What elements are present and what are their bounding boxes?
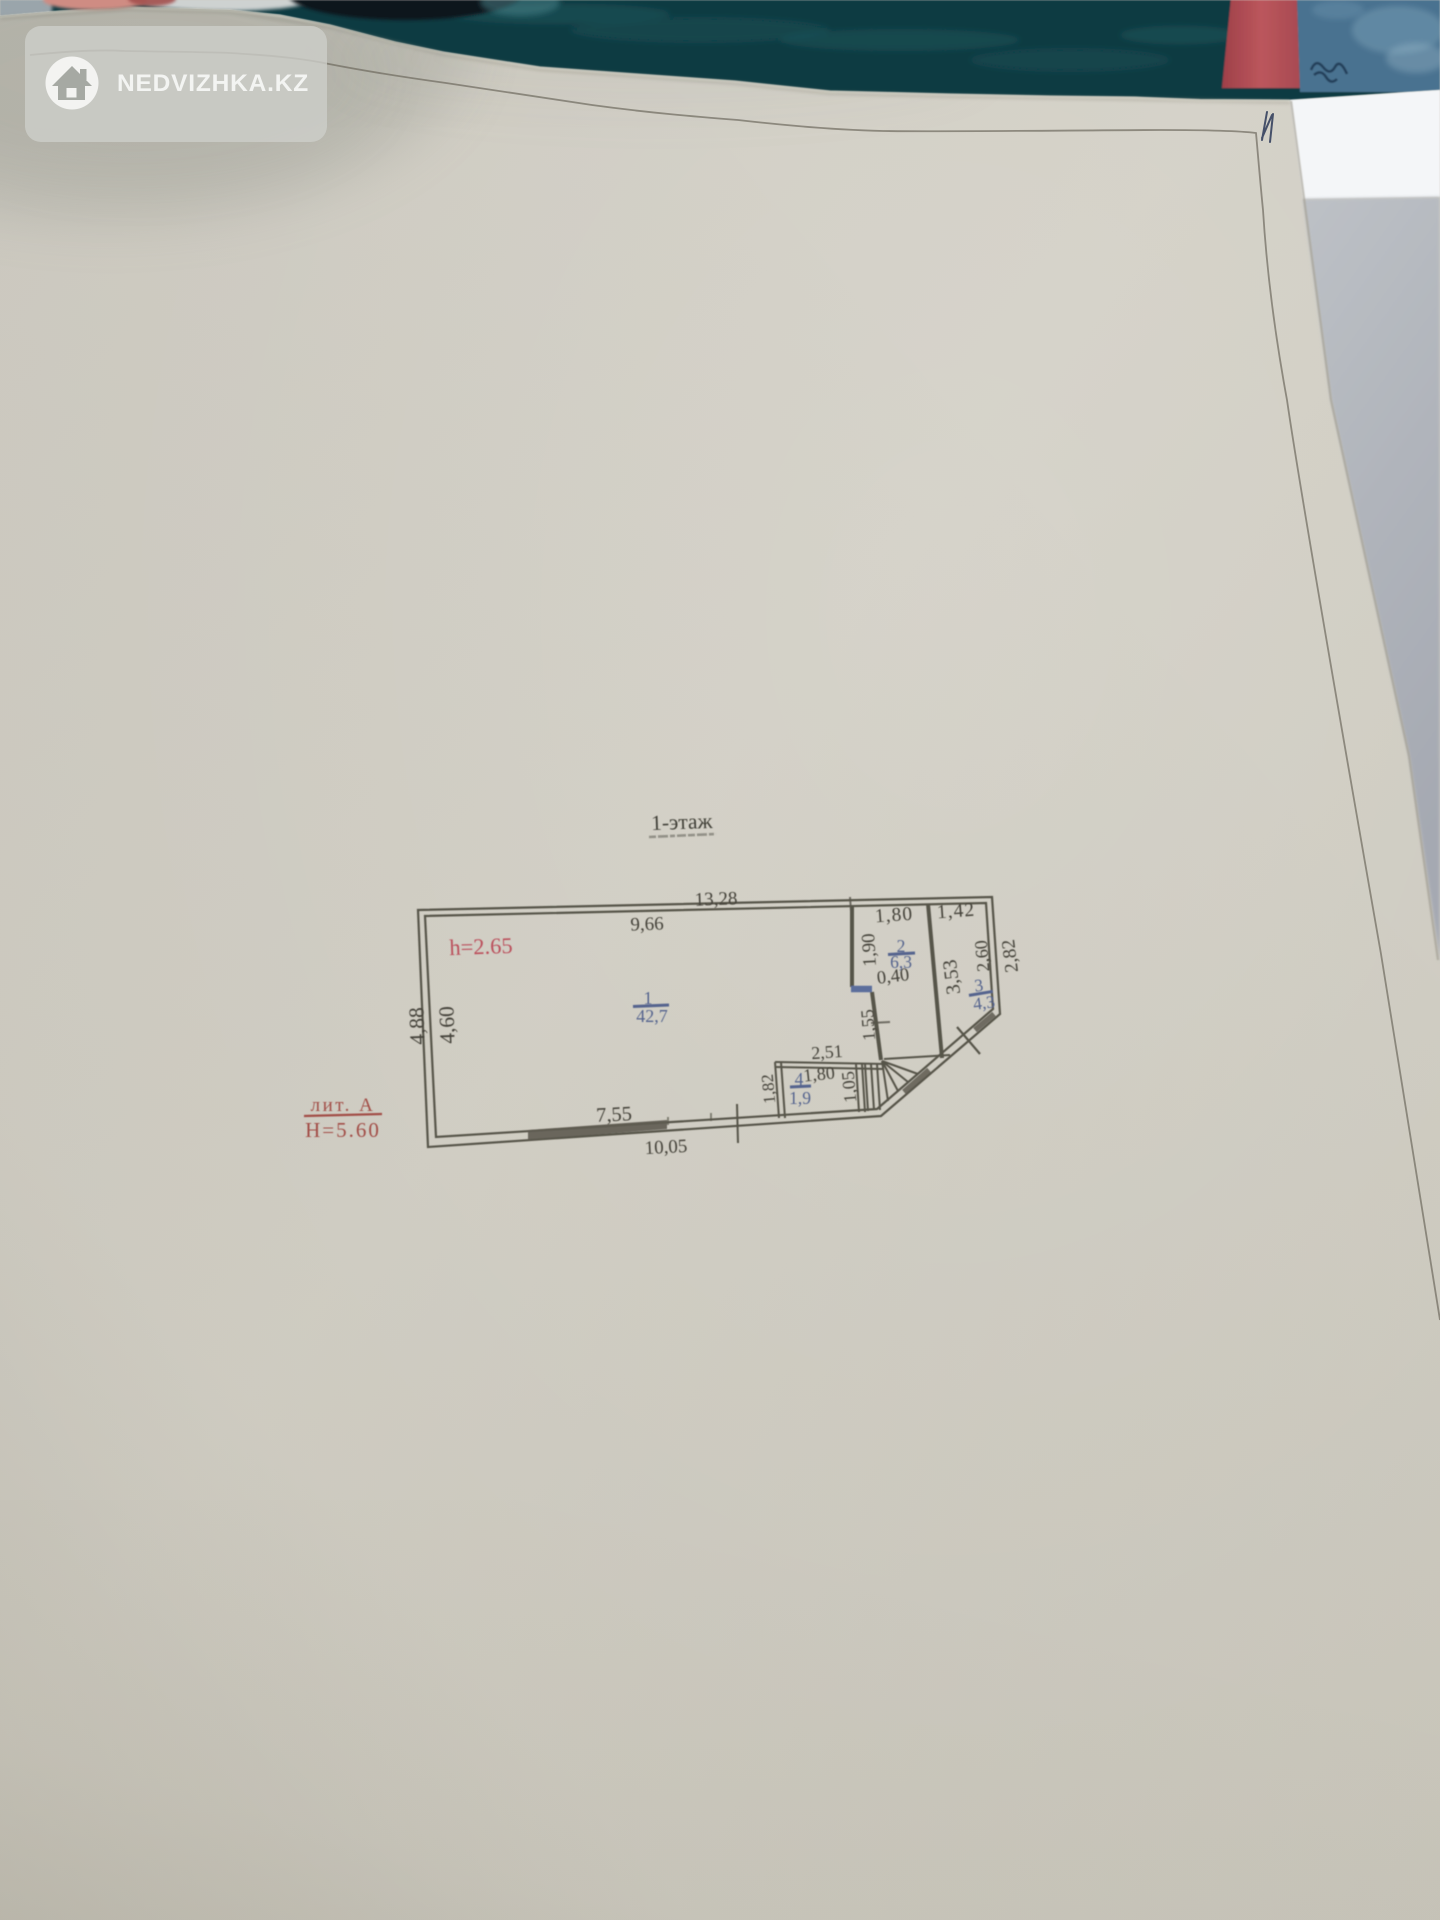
svg-text:7,55: 7,55 — [596, 1103, 633, 1127]
svg-text:1,55: 1,55 — [857, 1009, 879, 1042]
svg-text:1,80: 1,80 — [802, 1062, 835, 1085]
svg-text:NEDVIZHKA.KZ: NEDVIZHKA.KZ — [117, 70, 309, 97]
svg-text:13,28: 13,28 — [694, 888, 737, 910]
svg-text:42,7: 42,7 — [636, 1006, 668, 1026]
svg-text:1,9: 1,9 — [789, 1088, 811, 1108]
svg-text:1,82: 1,82 — [758, 1073, 780, 1104]
svg-text:4,60: 4,60 — [434, 1006, 459, 1044]
svg-text:1,80: 1,80 — [874, 904, 913, 928]
svg-text:h=2.65: h=2.65 — [449, 933, 513, 960]
svg-text:2,60: 2,60 — [971, 939, 994, 972]
svg-text:1,90: 1,90 — [858, 933, 881, 967]
svg-text:10,05: 10,05 — [644, 1136, 688, 1159]
svg-text:9,66: 9,66 — [630, 913, 664, 935]
svg-text:1-этаж: 1-этаж — [651, 809, 713, 835]
svg-text:4,3: 4,3 — [972, 991, 996, 1014]
svg-text:Н=5.60: Н=5.60 — [305, 1118, 381, 1142]
svg-text:2,51: 2,51 — [811, 1041, 844, 1063]
svg-text:4,88: 4,88 — [404, 1007, 429, 1045]
svg-text:6,3: 6,3 — [890, 952, 912, 972]
svg-text:2,82: 2,82 — [998, 938, 1023, 974]
svg-text:1,42: 1,42 — [936, 900, 975, 924]
svg-text:лит. А: лит. А — [311, 1095, 376, 1116]
svg-text:1,05: 1,05 — [838, 1070, 861, 1103]
svg-text:3,53: 3,53 — [939, 958, 965, 995]
